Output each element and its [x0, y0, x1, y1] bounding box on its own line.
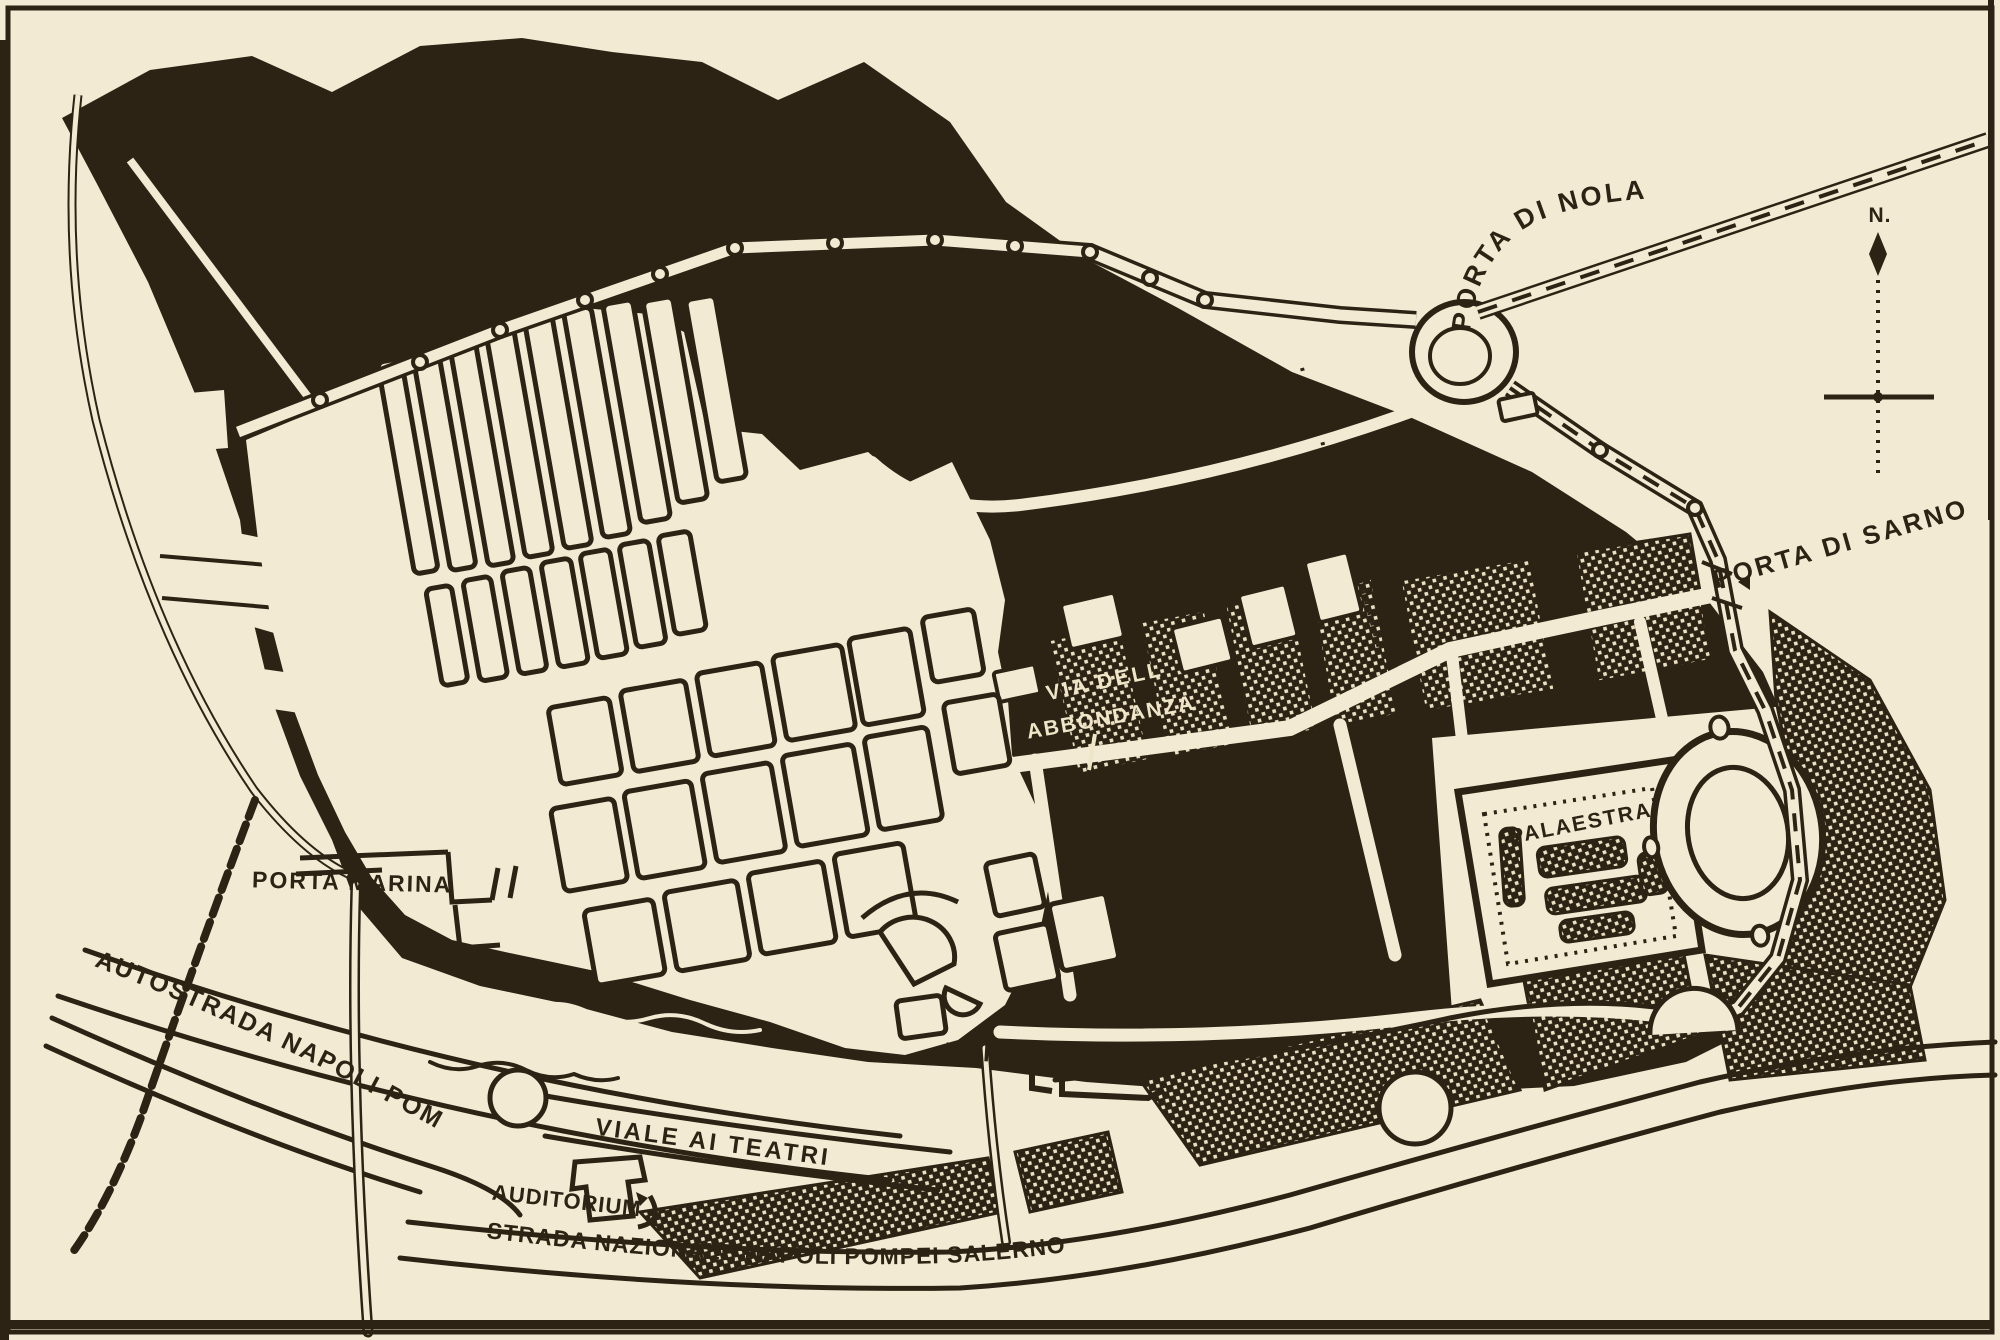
pompeii-map: PORTA DI NOLA PORTA DI SARNO VIA DELL AB… [0, 0, 2000, 1340]
strada-plaza [1379, 1072, 1451, 1144]
label-north: N. [1869, 204, 1892, 227]
label-porta-marina: PORTA MARINA [252, 866, 453, 897]
map-canvas: PORTA DI NOLA PORTA DI SARNO VIA DELL AB… [0, 0, 2000, 1340]
teatri-plaza [490, 1070, 546, 1126]
